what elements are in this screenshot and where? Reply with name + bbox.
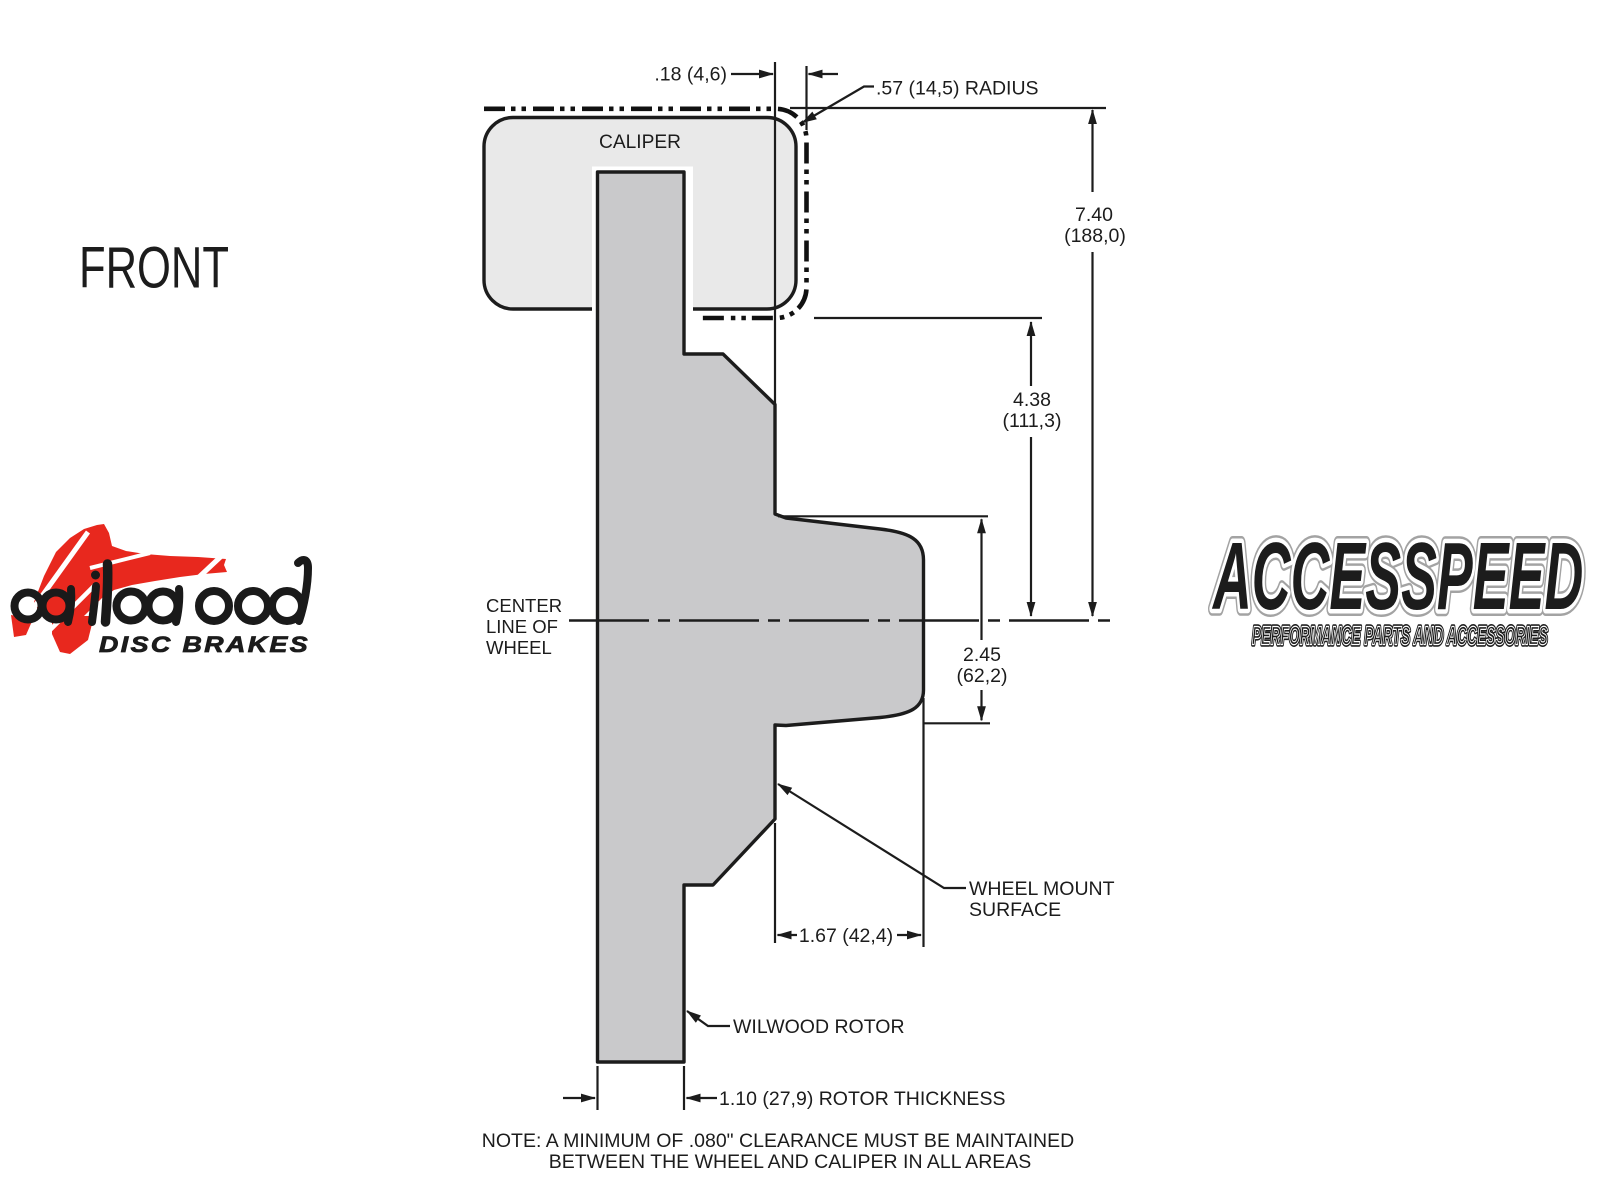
svg-text:WHEEL MOUNT: WHEEL MOUNT: [969, 878, 1115, 900]
svg-text:DISC BRAKES: DISC BRAKES: [99, 632, 310, 657]
svg-text:.57 (14,5) RADIUS: .57 (14,5) RADIUS: [876, 78, 1039, 100]
svg-text:BETWEEN THE WHEEL AND CALIPER: BETWEEN THE WHEEL AND CALIPER IN ALL ARE…: [549, 1151, 1032, 1173]
svg-text:CENTER: CENTER: [486, 595, 562, 616]
svg-text:NOTE: A MINIMUM OF .080" CLEAR: NOTE: A MINIMUM OF .080" CLEARANCE MUST …: [482, 1130, 1074, 1152]
svg-text:(62,2): (62,2): [957, 665, 1008, 687]
svg-text:FRONT: FRONT: [79, 236, 229, 301]
svg-text:WILWOOD ROTOR: WILWOOD ROTOR: [733, 1016, 905, 1038]
svg-text:PERFORMANCE PARTS AND ACCESSOR: PERFORMANCE PARTS AND ACCESSORIES: [1252, 622, 1548, 651]
svg-text:.18 (4,6): .18 (4,6): [654, 64, 727, 86]
svg-text:(188,0): (188,0): [1064, 225, 1126, 247]
svg-text:4.38: 4.38: [1013, 389, 1051, 411]
svg-text:ACCESSPEED: ACCESSPEED: [1212, 524, 1584, 630]
svg-text:WHEEL: WHEEL: [486, 637, 552, 658]
svg-text:CALIPER: CALIPER: [599, 132, 681, 153]
svg-text:1.10 (27,9) ROTOR THICKNESS: 1.10 (27,9) ROTOR THICKNESS: [719, 1088, 1005, 1110]
svg-text:2.45: 2.45: [963, 644, 1001, 666]
svg-text:7.40: 7.40: [1075, 204, 1113, 226]
svg-text:SURFACE: SURFACE: [969, 899, 1061, 921]
svg-text:(111,3): (111,3): [1003, 410, 1062, 432]
svg-text:1.67 (42,4): 1.67 (42,4): [799, 925, 893, 947]
svg-text:LINE OF: LINE OF: [486, 616, 558, 637]
